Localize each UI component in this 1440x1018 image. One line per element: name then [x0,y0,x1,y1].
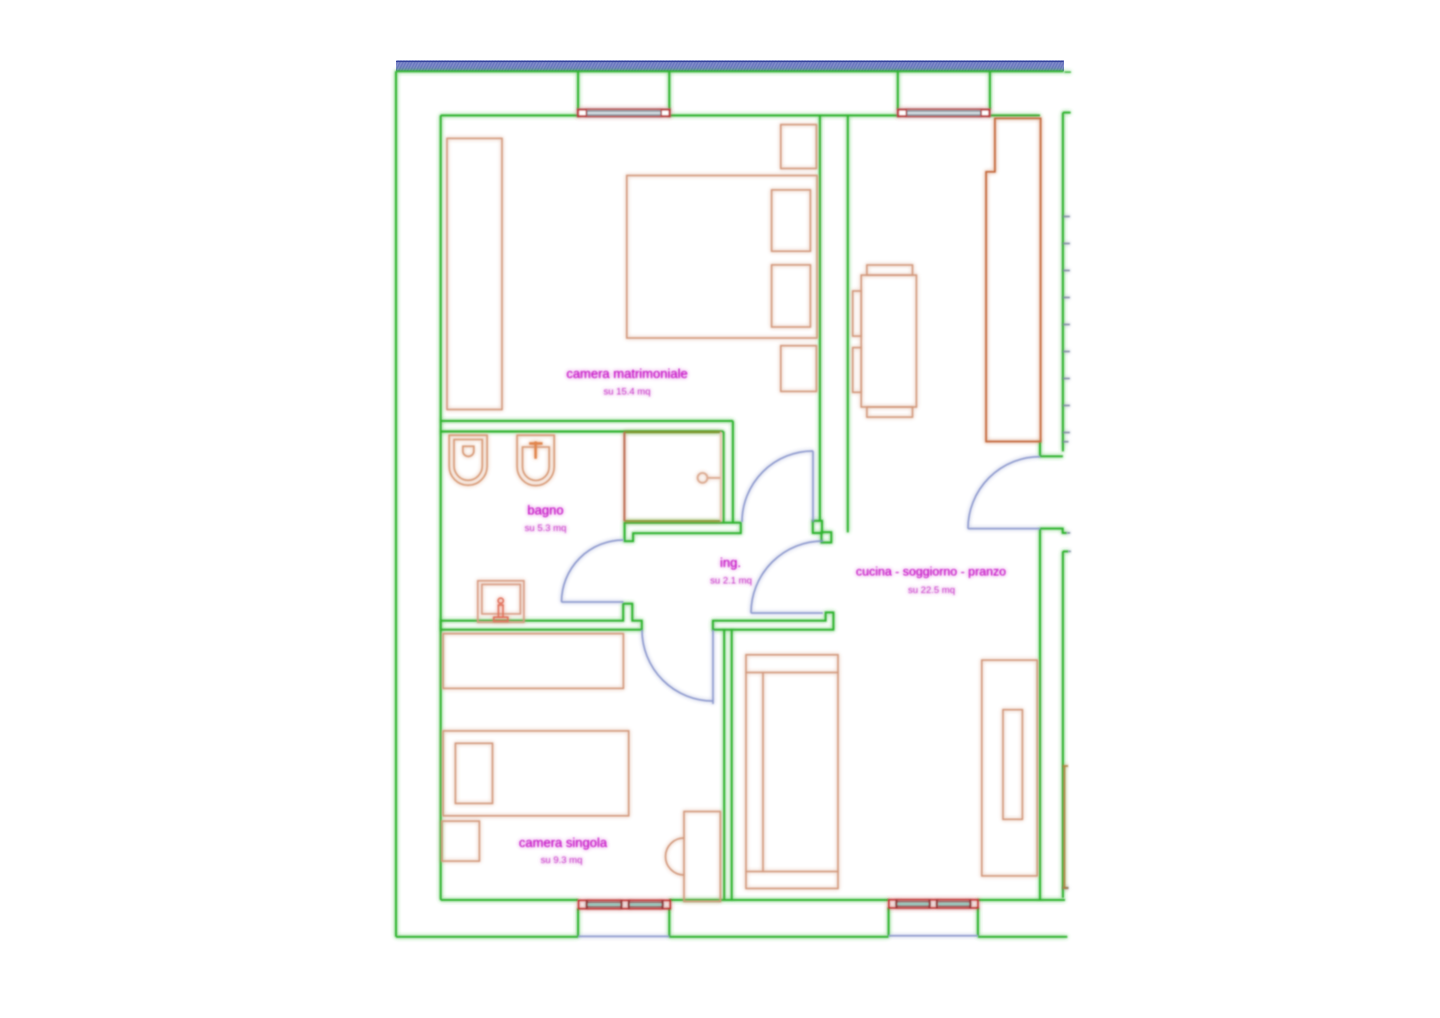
svg-text:su 9.3 mq: su 9.3 mq [541,855,583,866]
svg-text:camera matrimoniale: camera matrimoniale [566,366,687,381]
svg-text:cucina - soggiorno - pranzo: cucina - soggiorno - pranzo [856,565,1006,579]
svg-text:ing.: ing. [720,555,741,570]
svg-text:su 2.1 mq: su 2.1 mq [710,576,752,587]
svg-text:camera singola: camera singola [519,835,608,850]
svg-text:su 5.3 mq: su 5.3 mq [525,523,567,534]
svg-text:su 15.4 mq: su 15.4 mq [604,387,651,398]
svg-text:bagno: bagno [527,503,563,518]
svg-text:su 22.5 mq: su 22.5 mq [908,585,955,596]
